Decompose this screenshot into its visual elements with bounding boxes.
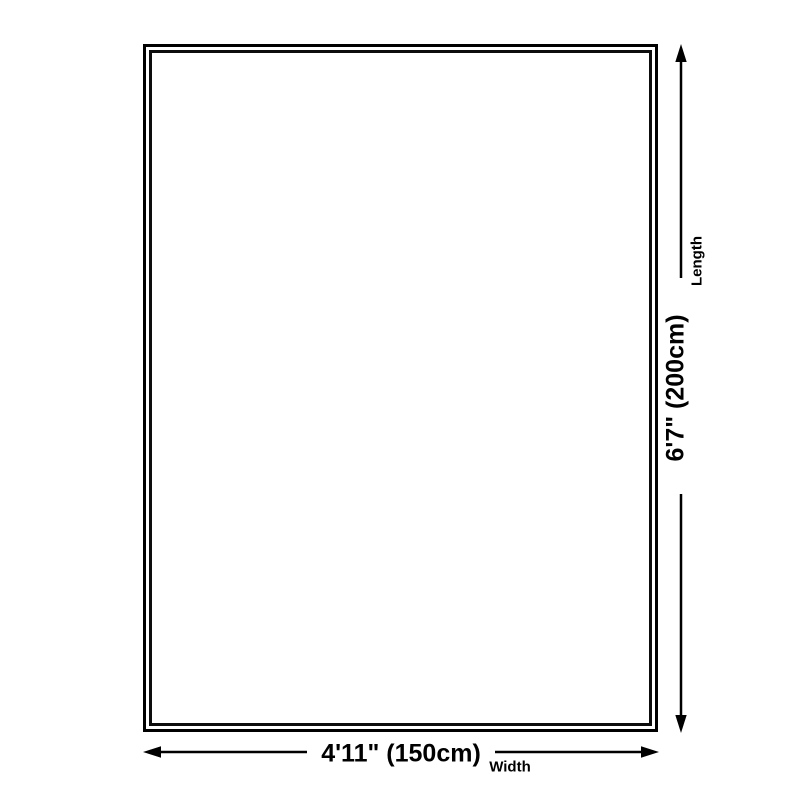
dimension-diagram: 6'7" (200cm) Length 4'11" (150cm) Width — [0, 0, 800, 800]
length-label: Length — [690, 236, 705, 286]
width-value: 4'11" (150cm) — [321, 742, 481, 767]
rug-outline — [143, 44, 658, 732]
width-label: Width — [489, 760, 531, 775]
rug-inner-border — [149, 50, 652, 726]
length-value: 6'7" (200cm) — [664, 314, 689, 461]
